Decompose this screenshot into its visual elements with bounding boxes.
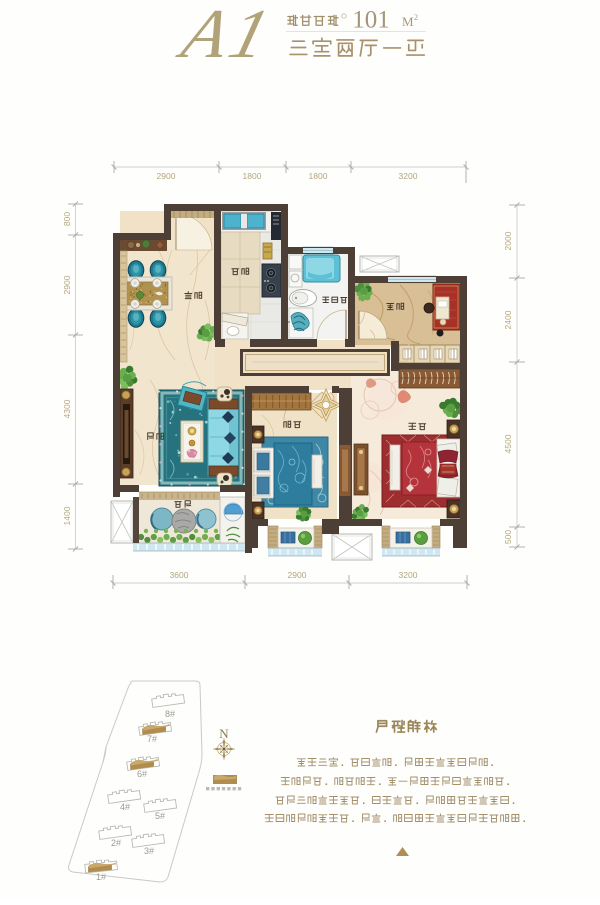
svg-text:1#: 1#	[96, 872, 106, 882]
svg-text:3#: 3#	[144, 846, 154, 856]
svg-text:3600: 3600	[170, 570, 189, 580]
svg-text:2400: 2400	[503, 310, 513, 329]
svg-text:3200: 3200	[399, 570, 418, 580]
svg-text:7#: 7#	[147, 734, 157, 744]
svg-text:4500: 4500	[503, 434, 513, 453]
svg-text:5#: 5#	[155, 811, 165, 821]
svg-text:500: 500	[503, 530, 513, 544]
svg-text:2000: 2000	[503, 231, 513, 250]
svg-text:101: 101	[352, 7, 390, 34]
svg-text:1400: 1400	[62, 506, 72, 525]
svg-text:4300: 4300	[62, 399, 72, 418]
svg-text:2900: 2900	[288, 570, 307, 580]
svg-text:2: 2	[414, 13, 418, 22]
svg-text:1800: 1800	[243, 171, 262, 181]
svg-text:2900: 2900	[157, 171, 176, 181]
svg-text:800: 800	[62, 212, 72, 226]
svg-text:6#: 6#	[137, 769, 147, 779]
svg-text:3200: 3200	[399, 171, 418, 181]
svg-text:M: M	[402, 14, 414, 29]
svg-text:8#: 8#	[165, 709, 175, 719]
svg-text:2900: 2900	[62, 275, 72, 294]
svg-text:4#: 4#	[120, 802, 130, 812]
svg-text:2#: 2#	[111, 838, 121, 848]
svg-text:1800: 1800	[309, 171, 328, 181]
